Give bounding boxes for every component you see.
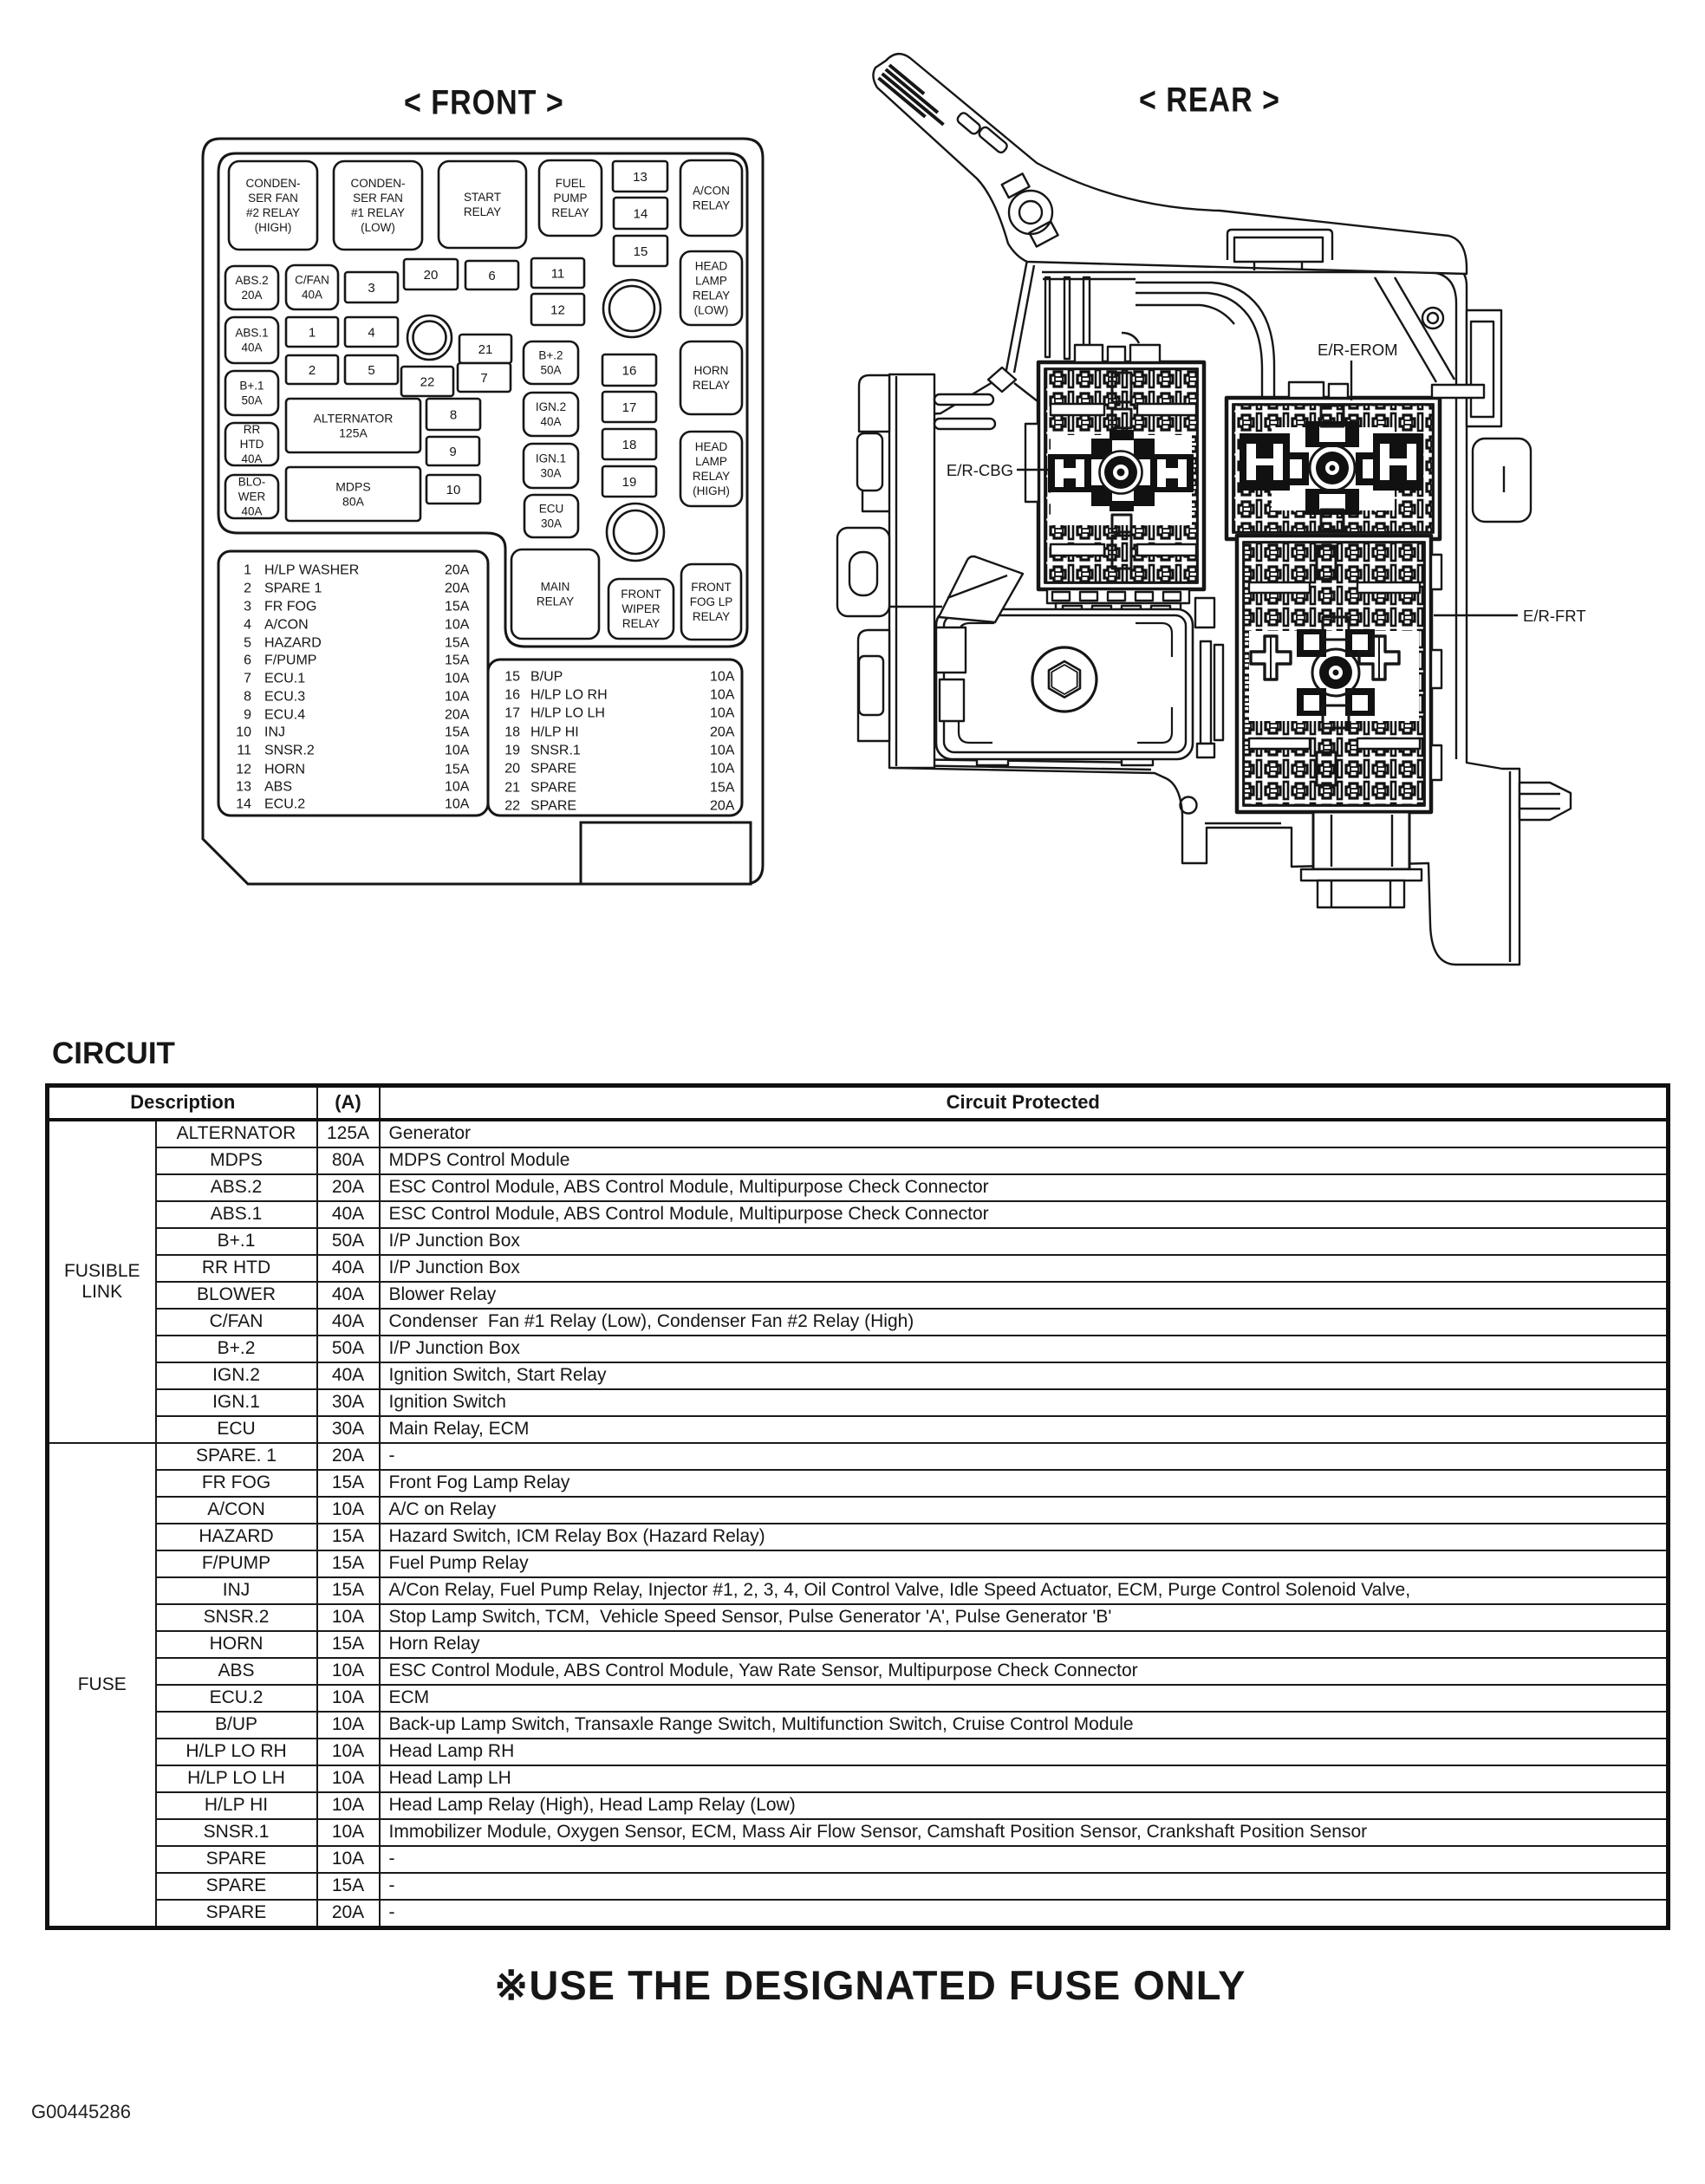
svg-text:IGN.1: IGN.1 (536, 452, 566, 465)
svg-text:40A: 40A (241, 505, 262, 518)
svg-text:ABS.1: ABS.1 (235, 327, 268, 340)
svg-text:15A: 15A (445, 653, 470, 668)
svg-text:FUEL: FUEL (556, 177, 586, 190)
svg-text:WIPER: WIPER (621, 602, 661, 615)
svg-text:HEAD: HEAD (695, 260, 728, 273)
svg-text:9: 9 (244, 708, 251, 723)
svg-text:21: 21 (478, 342, 493, 357)
svg-text:13: 13 (633, 170, 648, 185)
svg-text:7: 7 (480, 371, 487, 386)
svg-text:19: 19 (504, 744, 520, 758)
svg-text:F/PUMP: F/PUMP (264, 653, 316, 668)
svg-text:WER: WER (238, 491, 266, 504)
svg-text:RELAY: RELAY (464, 205, 501, 218)
svg-text:SPARE: SPARE (530, 762, 576, 777)
svg-text:B+.2: B+.2 (538, 349, 563, 362)
svg-text:START: START (464, 191, 501, 204)
svg-text:#2 RELAY: #2 RELAY (246, 206, 300, 219)
svg-text:SPARE: SPARE (530, 781, 576, 796)
svg-text:MAIN: MAIN (541, 581, 570, 594)
svg-text:50A: 50A (241, 394, 262, 407)
svg-text:10A: 10A (710, 744, 735, 758)
svg-text:ABS: ABS (264, 780, 292, 795)
svg-text:HAZARD: HAZARD (264, 636, 322, 651)
svg-text:15A: 15A (710, 781, 735, 796)
svg-text:10A: 10A (710, 670, 735, 685)
svg-text:8: 8 (450, 407, 457, 422)
svg-text:IGN.2: IGN.2 (536, 400, 566, 413)
svg-text:3: 3 (244, 600, 251, 614)
svg-text:17: 17 (622, 400, 637, 415)
svg-text:8: 8 (244, 690, 251, 705)
svg-text:RELAY: RELAY (693, 379, 730, 392)
svg-text:1: 1 (309, 325, 316, 340)
svg-text:HORN: HORN (694, 364, 729, 377)
svg-text:22: 22 (504, 799, 520, 814)
svg-text:14: 14 (236, 797, 251, 812)
svg-text:FOG LP: FOG LP (690, 595, 733, 608)
svg-text:B+.1: B+.1 (239, 380, 264, 393)
svg-text:FRONT: FRONT (691, 581, 732, 594)
svg-text:30A: 30A (540, 467, 561, 480)
svg-text:21: 21 (504, 781, 520, 796)
svg-text:18: 18 (504, 725, 520, 740)
svg-text:E/R-CBG: E/R-CBG (947, 461, 1013, 479)
svg-text:10A: 10A (445, 690, 470, 705)
svg-text:17: 17 (504, 706, 520, 721)
svg-text:10A: 10A (445, 797, 470, 812)
svg-text:A/CON: A/CON (693, 185, 730, 198)
svg-text:19: 19 (622, 475, 637, 490)
svg-text:10A: 10A (710, 706, 735, 721)
svg-text:4: 4 (368, 325, 374, 340)
svg-text:2: 2 (244, 582, 251, 596)
svg-text:ABS.2: ABS.2 (235, 274, 268, 287)
svg-text:RELAY: RELAY (693, 610, 730, 623)
svg-text:6: 6 (244, 653, 251, 668)
svg-text:4: 4 (244, 618, 251, 633)
svg-text:20A: 20A (710, 725, 735, 740)
svg-text:ECU.1: ECU.1 (264, 672, 305, 686)
svg-text:22: 22 (420, 374, 435, 389)
svg-text:20A: 20A (445, 582, 470, 596)
svg-text:10: 10 (236, 725, 251, 740)
svg-text:20: 20 (424, 268, 439, 283)
svg-text:H/LP LO RH: H/LP LO RH (530, 688, 608, 703)
svg-text:ECU.3: ECU.3 (264, 690, 305, 705)
svg-text:SER FAN: SER FAN (353, 192, 403, 205)
svg-text:B/UP: B/UP (530, 670, 563, 685)
svg-text:(LOW): (LOW) (694, 304, 729, 317)
svg-text:15: 15 (504, 670, 520, 685)
svg-text:(HIGH): (HIGH) (255, 221, 292, 234)
svg-text:15A: 15A (445, 725, 470, 740)
svg-text:2: 2 (309, 363, 316, 378)
svg-text:FR FOG: FR FOG (264, 600, 316, 614)
svg-text:H/LP HI: H/LP HI (530, 725, 579, 740)
svg-text:16: 16 (622, 363, 637, 378)
svg-text:LAMP: LAMP (695, 275, 727, 288)
svg-text:40A: 40A (302, 289, 322, 302)
svg-text:SER FAN: SER FAN (248, 192, 298, 205)
svg-text:80A: 80A (342, 494, 365, 508)
svg-text:H/LP LO LH: H/LP LO LH (530, 706, 605, 721)
svg-text:20: 20 (504, 762, 520, 777)
svg-text:(HIGH): (HIGH) (693, 484, 730, 497)
svg-text:10A: 10A (445, 618, 470, 633)
svg-text:E/R-FRT: E/R-FRT (1523, 607, 1586, 625)
svg-text:ECU: ECU (539, 503, 564, 516)
svg-text:40A: 40A (540, 415, 561, 428)
svg-text:CONDEN-: CONDEN- (351, 177, 406, 190)
svg-text:11: 11 (237, 744, 251, 758)
svg-text:20A: 20A (445, 563, 470, 578)
svg-text:10A: 10A (445, 744, 470, 758)
svg-text:10A: 10A (445, 780, 470, 795)
svg-text:C/FAN: C/FAN (295, 274, 329, 287)
svg-text:INJ: INJ (264, 725, 285, 740)
svg-text:LAMP: LAMP (695, 455, 727, 468)
svg-text:9: 9 (449, 445, 456, 459)
svg-text:12: 12 (550, 302, 565, 317)
svg-text:5: 5 (368, 363, 374, 378)
svg-text:10A: 10A (710, 688, 735, 703)
svg-text:30A: 30A (541, 517, 562, 530)
svg-text:15A: 15A (445, 600, 470, 614)
svg-text:ECU.4: ECU.4 (264, 708, 305, 723)
svg-text:RELAY: RELAY (551, 206, 589, 219)
svg-text:A/CON: A/CON (264, 618, 309, 633)
svg-text:40A: 40A (241, 452, 262, 465)
svg-text:10A: 10A (445, 672, 470, 686)
svg-text:5: 5 (244, 636, 251, 651)
svg-text:15A: 15A (445, 763, 470, 777)
svg-text:20A: 20A (241, 289, 262, 302)
svg-text:#1 RELAY: #1 RELAY (351, 206, 405, 219)
svg-text:RELAY: RELAY (693, 289, 730, 302)
svg-text:RELAY: RELAY (693, 470, 730, 483)
svg-text:RR: RR (244, 423, 261, 436)
svg-text:HORN: HORN (264, 763, 305, 777)
svg-text:RELAY: RELAY (537, 595, 574, 608)
svg-text:11: 11 (551, 266, 565, 281)
svg-text:SPARE: SPARE (530, 799, 576, 814)
svg-text:ECU.2: ECU.2 (264, 797, 305, 812)
svg-text:PUMP: PUMP (553, 192, 587, 205)
svg-text:13: 13 (236, 780, 251, 795)
svg-text:16: 16 (504, 688, 520, 703)
svg-text:SPARE 1: SPARE 1 (264, 582, 322, 596)
svg-text:7: 7 (244, 672, 251, 686)
svg-text:FRONT: FRONT (621, 588, 661, 601)
svg-text:BLO-: BLO- (238, 476, 266, 489)
svg-text:15: 15 (634, 244, 648, 259)
svg-text:10: 10 (446, 483, 461, 497)
svg-text:125A: 125A (339, 426, 368, 439)
svg-text:(LOW): (LOW) (361, 221, 395, 234)
svg-text:MDPS: MDPS (335, 479, 370, 493)
svg-text:SNSR.1: SNSR.1 (530, 744, 581, 758)
svg-text:20A: 20A (445, 708, 470, 723)
svg-text:H/LP WASHER: H/LP WASHER (264, 563, 359, 578)
svg-text:ALTERNATOR: ALTERNATOR (314, 411, 394, 425)
svg-text:40A: 40A (241, 341, 262, 354)
svg-text:14: 14 (634, 206, 648, 221)
svg-text:RELAY: RELAY (622, 617, 660, 630)
svg-text:20A: 20A (710, 799, 735, 814)
svg-text:50A: 50A (540, 364, 561, 377)
svg-text:18: 18 (622, 438, 637, 452)
svg-text:1: 1 (244, 563, 251, 578)
svg-text:6: 6 (488, 269, 495, 283)
svg-text:E/R-EROM: E/R-EROM (1318, 341, 1398, 359)
svg-text:HTD: HTD (240, 438, 264, 451)
svg-text:HEAD: HEAD (695, 440, 728, 453)
svg-text:RELAY: RELAY (693, 199, 730, 212)
svg-text:10A: 10A (710, 762, 735, 777)
svg-text:SNSR.2: SNSR.2 (264, 744, 315, 758)
svg-text:12: 12 (236, 763, 251, 777)
svg-text:CONDEN-: CONDEN- (246, 177, 301, 190)
svg-text:3: 3 (368, 281, 374, 296)
svg-text:15A: 15A (445, 636, 470, 651)
